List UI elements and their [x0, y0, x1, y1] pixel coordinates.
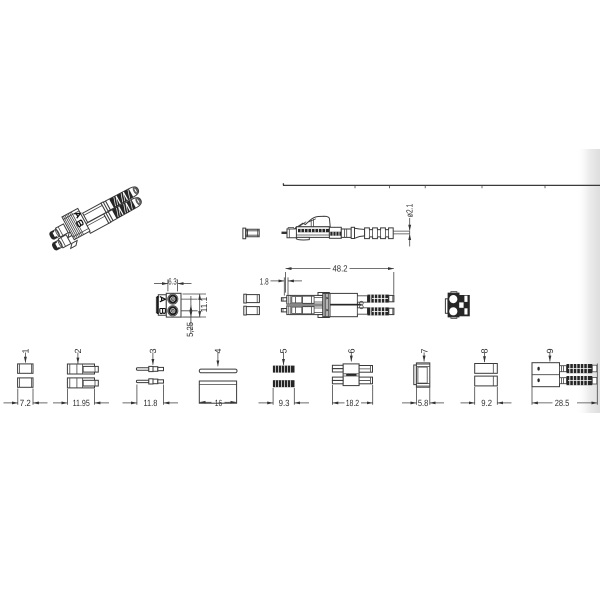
svg-text:5.8: 5.8: [418, 398, 428, 408]
svg-text:11.1: 11.1: [199, 297, 209, 313]
svg-text:5,25: 5,25: [185, 322, 195, 337]
svg-text:1.8: 1.8: [260, 276, 269, 286]
svg-text:11.95: 11.95: [73, 398, 90, 408]
svg-text:48.2: 48.2: [333, 264, 348, 274]
svg-text:16: 16: [215, 398, 222, 408]
svg-text:ø2.1: ø2.1: [405, 204, 415, 218]
svg-text:28.5: 28.5: [555, 398, 570, 408]
svg-text:7.2: 7.2: [20, 398, 31, 408]
svg-text:9.2: 9.2: [481, 398, 492, 408]
svg-text:18.2: 18.2: [346, 398, 359, 408]
svg-text:6.3: 6.3: [168, 277, 176, 287]
svg-text:11.8: 11.8: [144, 398, 158, 408]
svg-text:9.3: 9.3: [279, 398, 290, 408]
